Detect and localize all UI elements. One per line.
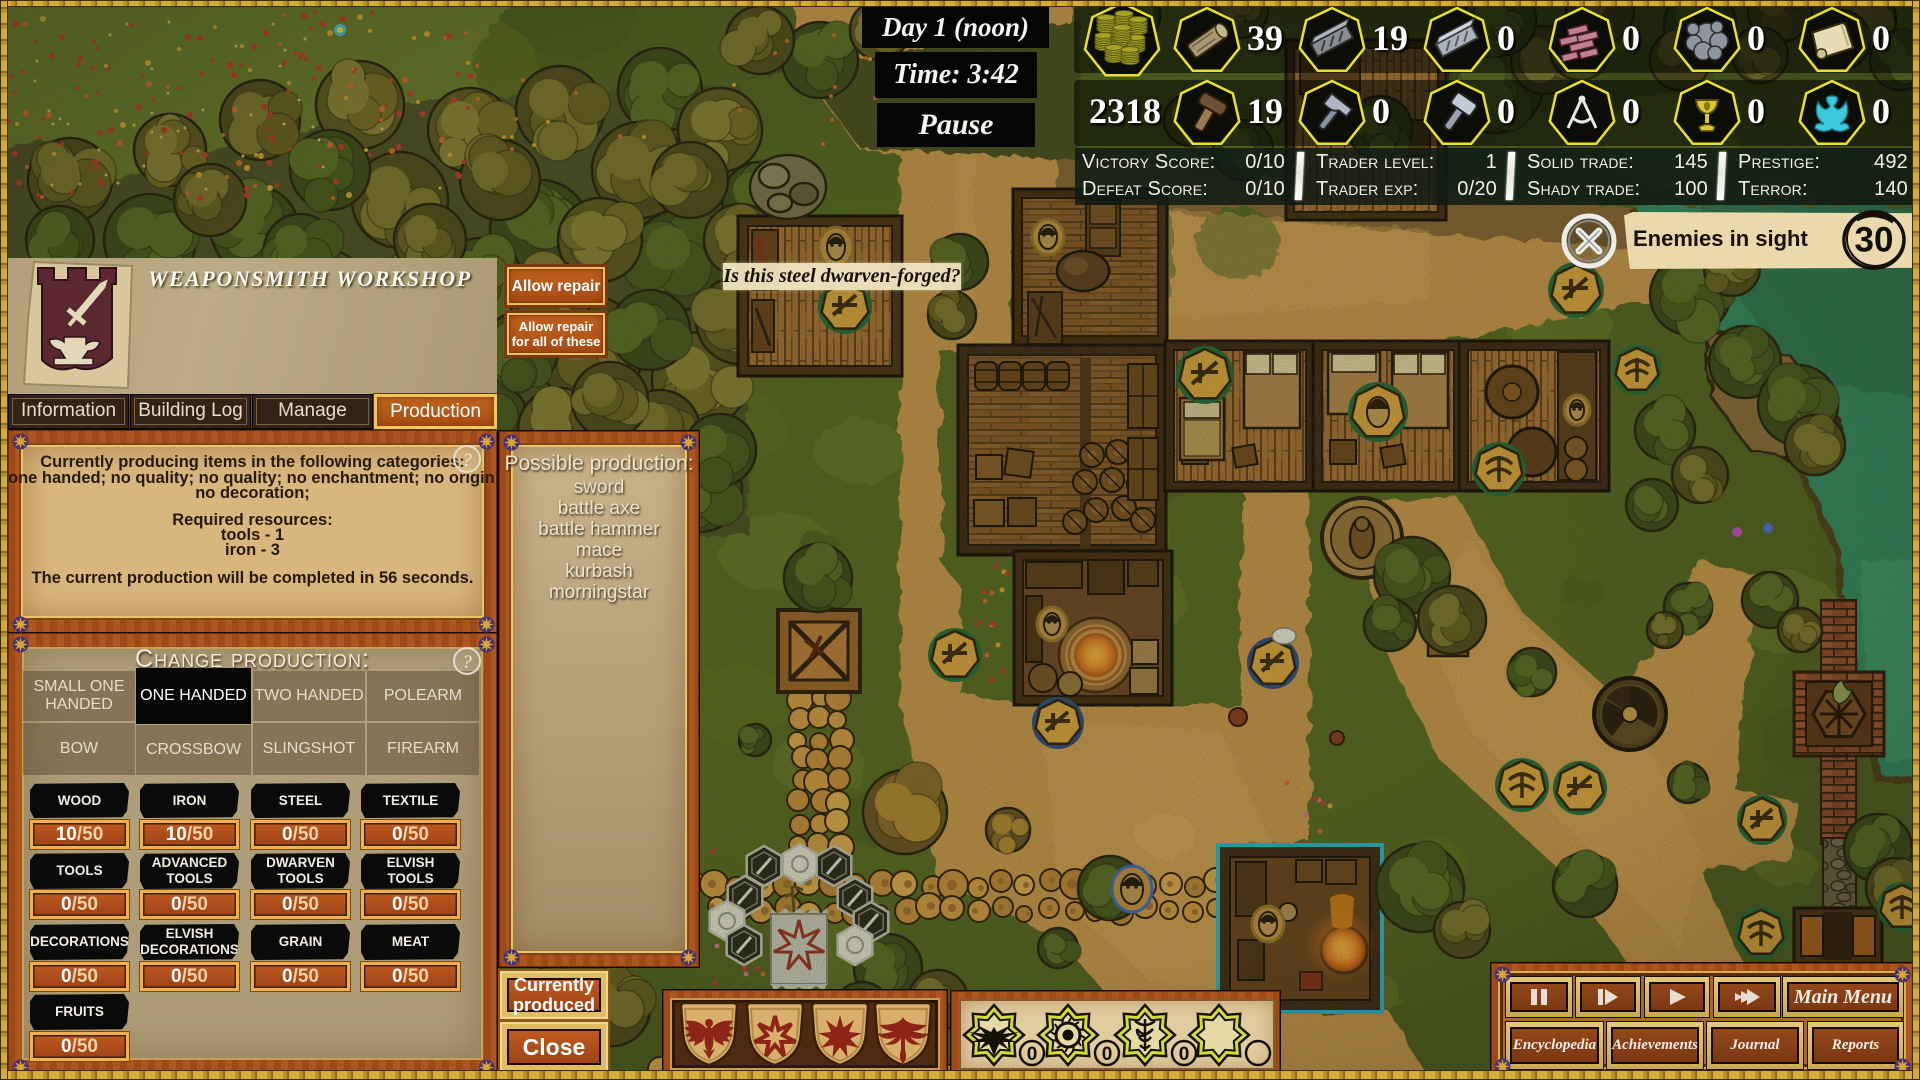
- svg-text:0: 0: [1027, 1044, 1038, 1065]
- svg-text:?: ?: [462, 450, 472, 471]
- svg-text:?: ?: [462, 652, 472, 673]
- svg-text:0: 0: [1102, 1044, 1113, 1065]
- svg-text:0: 0: [1179, 1044, 1190, 1065]
- svg-text:30: 30: [1855, 221, 1894, 260]
